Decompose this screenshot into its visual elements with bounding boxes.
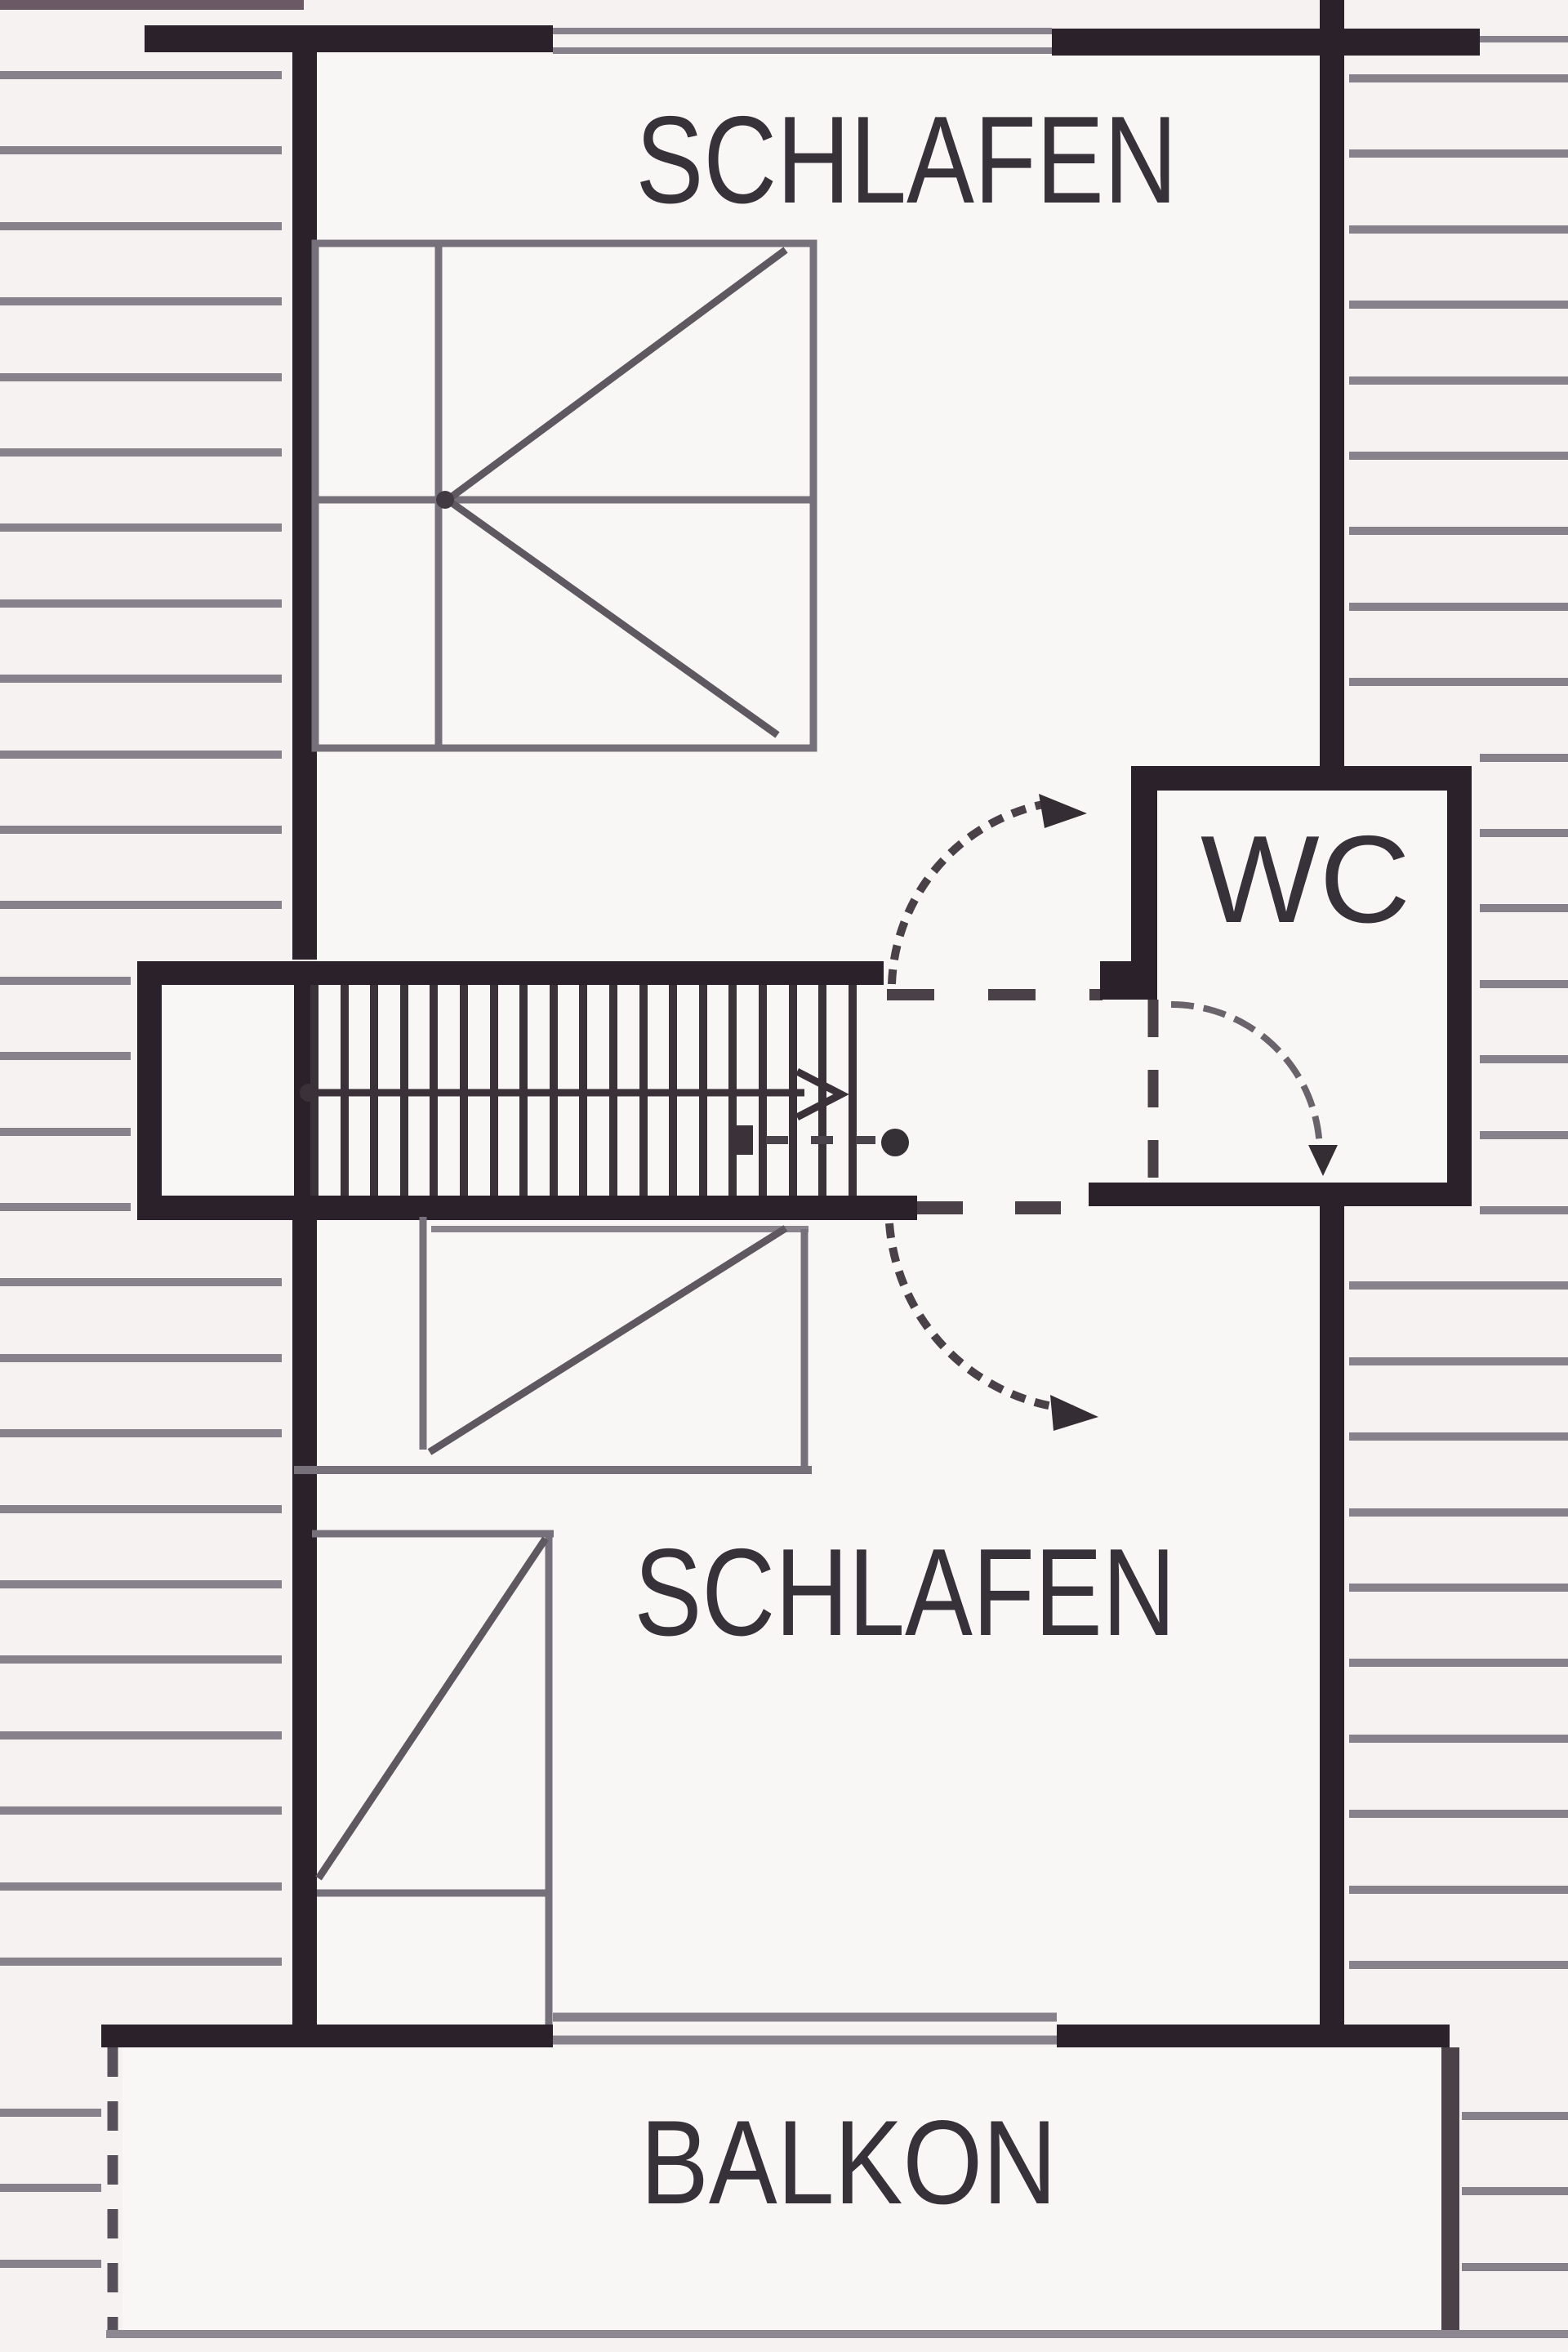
svg-text:BALKON: BALKON: [640, 2096, 1057, 2229]
svg-text:SCHLAFEN: SCHLAFEN: [636, 91, 1178, 229]
svg-text:SCHLAFEN: SCHLAFEN: [635, 1523, 1176, 1662]
svg-text:WC: WC: [1200, 810, 1410, 949]
